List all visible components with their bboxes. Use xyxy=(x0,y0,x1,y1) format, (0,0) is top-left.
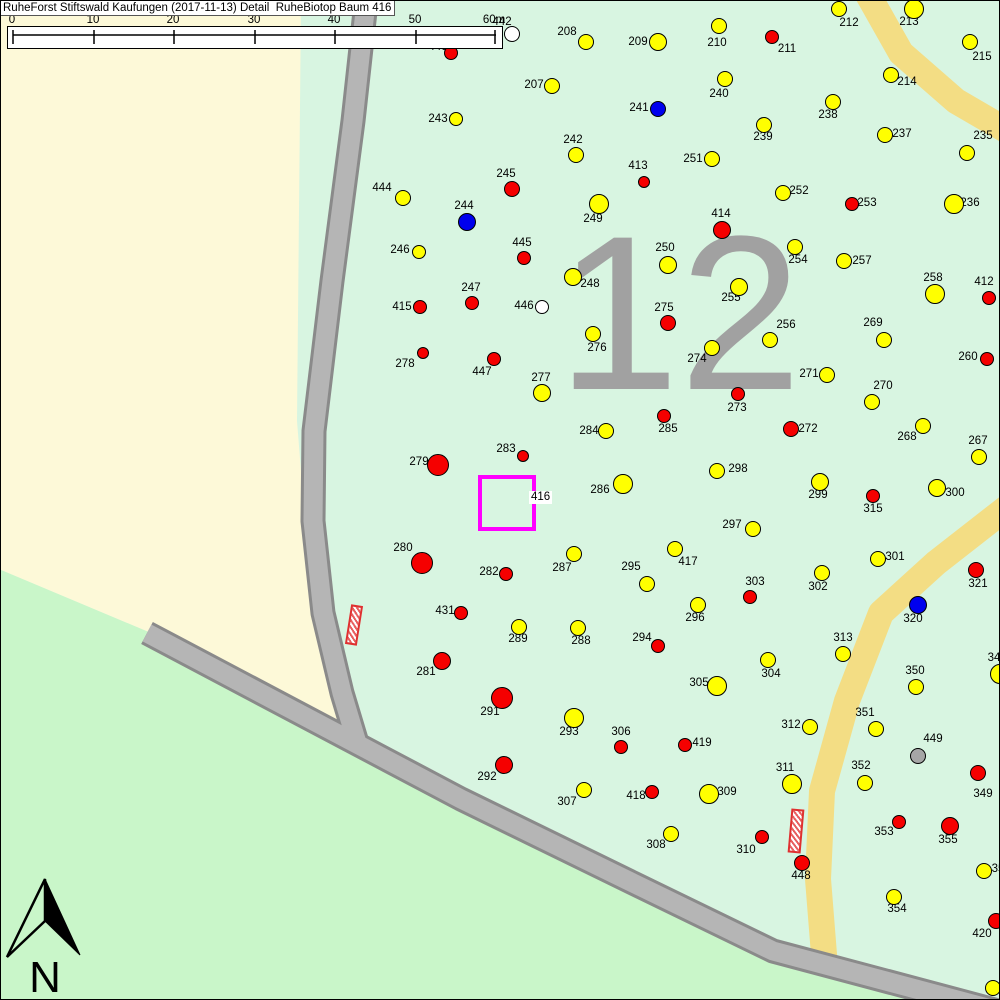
tree-dot-210[interactable] xyxy=(711,18,727,34)
tree-dot-214[interactable] xyxy=(883,67,899,83)
tree-dot-276[interactable] xyxy=(585,326,601,342)
tree-dot-431[interactable] xyxy=(454,606,468,620)
tree-label: 304 xyxy=(761,668,780,680)
tree-label: 258 xyxy=(923,272,942,284)
tree-dot-272[interactable] xyxy=(783,421,799,437)
tree-label: 278 xyxy=(395,358,414,370)
tree-label: 254 xyxy=(788,254,807,266)
tree-label: 287 xyxy=(552,562,571,574)
tree-label: 277 xyxy=(531,372,550,384)
tree-label: 284 xyxy=(579,425,598,437)
tree-label: 352 xyxy=(851,760,870,772)
tree-label: 305 xyxy=(689,677,708,689)
tree-label: 351 xyxy=(855,707,874,719)
tree-dot-239[interactable] xyxy=(756,117,772,133)
tree-dot-413[interactable] xyxy=(638,176,650,188)
tree-dot-299[interactable] xyxy=(811,473,829,491)
tree-dot-445[interactable] xyxy=(517,251,531,265)
tree-dot-207[interactable] xyxy=(544,78,560,94)
tree-label: 303 xyxy=(745,576,764,588)
map-canvas: 12 416 442443208209210211212213214215207… xyxy=(0,0,1000,1000)
tree-label: 243 xyxy=(428,113,447,125)
tree-label: 306 xyxy=(611,726,630,738)
tree-dot-236[interactable] xyxy=(944,194,964,214)
tree-dot-292[interactable] xyxy=(495,756,513,774)
tree-label: 418 xyxy=(626,790,645,802)
tree-dot-215[interactable] xyxy=(962,34,978,50)
tree-label: 208 xyxy=(557,26,576,38)
tree-label: 257 xyxy=(852,255,871,267)
tree-label: 275 xyxy=(654,302,673,314)
tree-label: 353 xyxy=(874,826,893,838)
tree-label: 283 xyxy=(496,443,515,455)
tree-label: 238 xyxy=(818,109,837,121)
tree-label: 312 xyxy=(781,719,800,731)
tree-label: 273 xyxy=(727,402,746,414)
tree-dot-298[interactable] xyxy=(709,463,725,479)
tree-dot-304[interactable] xyxy=(760,652,776,668)
north-arrow-left-blade xyxy=(7,879,45,957)
tree-dot-300[interactable] xyxy=(928,479,946,497)
tree-label: 274 xyxy=(687,353,706,365)
tree-label: 297 xyxy=(722,519,741,531)
tree-label: 302 xyxy=(808,581,827,593)
tree-label: 249 xyxy=(583,213,602,225)
tree-dot-247[interactable] xyxy=(465,296,479,310)
tree-dot-307[interactable] xyxy=(576,782,592,798)
tree-dot-293[interactable] xyxy=(564,708,584,728)
tree-label: 309 xyxy=(717,786,736,798)
tree-label: 245 xyxy=(496,168,515,180)
tree-label: 445 xyxy=(512,237,531,249)
tree-label: 253 xyxy=(857,197,876,209)
tree-dot-282[interactable] xyxy=(499,567,513,581)
tree-dot-280[interactable] xyxy=(411,552,433,574)
tree-label: 447 xyxy=(472,366,491,378)
tree-label: 349 xyxy=(973,788,992,800)
tree-dot-302[interactable] xyxy=(814,565,830,581)
tree-dot-235[interactable] xyxy=(959,145,975,161)
tree-dot-249[interactable] xyxy=(589,194,609,214)
tree-dot-273[interactable] xyxy=(731,387,745,401)
tree-dot-271[interactable] xyxy=(819,367,835,383)
tree-dot-350[interactable] xyxy=(908,679,924,695)
tree-label: 412 xyxy=(974,276,993,288)
tree-dot-291[interactable] xyxy=(491,687,513,709)
tree-dot-248[interactable] xyxy=(564,268,582,286)
tree-label: 311 xyxy=(776,762,794,774)
tree-dot-270[interactable] xyxy=(864,394,880,410)
tree-dot-446[interactable] xyxy=(535,300,549,314)
tree-label: 269 xyxy=(863,317,882,329)
tree-dot-260[interactable] xyxy=(980,352,994,366)
tree-dot-447[interactable] xyxy=(487,352,501,366)
tree-label: 247 xyxy=(461,282,480,294)
tree-label: 281 xyxy=(416,666,435,678)
tree-dot-415[interactable] xyxy=(413,300,427,314)
tree-label: 241 xyxy=(629,102,648,114)
tree-dot-448[interactable] xyxy=(794,855,810,871)
tree-dot-212[interactable] xyxy=(831,1,847,17)
tree-dot-243[interactable] xyxy=(449,112,463,126)
tree-label: 248 xyxy=(580,278,599,290)
tree-dot-295[interactable] xyxy=(639,576,655,592)
tree-dot-237[interactable] xyxy=(877,127,893,143)
tree-dot-312[interactable] xyxy=(802,719,818,735)
scale-number: 50 xyxy=(409,14,422,26)
tree-dot-278[interactable] xyxy=(417,347,429,359)
tree-label: 350 xyxy=(905,665,924,677)
tree-dot-444[interactable] xyxy=(395,190,411,206)
tree-label: 212 xyxy=(839,17,858,29)
tree-dot-254[interactable] xyxy=(787,239,803,255)
tree-dot-274[interactable] xyxy=(704,340,720,356)
tree-label: 250 xyxy=(655,242,674,254)
tree-label: 307 xyxy=(557,796,576,808)
tree-dot-321[interactable] xyxy=(968,562,984,578)
tree-label: 444 xyxy=(372,182,391,194)
tree-label: 413 xyxy=(628,160,647,172)
tree-dot-355[interactable] xyxy=(941,817,959,835)
tree-dot-306[interactable] xyxy=(614,740,628,754)
tree-dot-297[interactable] xyxy=(745,521,761,537)
north-label: N xyxy=(29,953,61,999)
tree-label: 207 xyxy=(524,79,543,91)
tree-dot-256[interactable] xyxy=(762,332,778,348)
tree-label: 449 xyxy=(923,733,942,745)
tree-dot-412[interactable] xyxy=(982,291,996,305)
tree-label: 292 xyxy=(477,771,496,783)
tree-dot-242[interactable] xyxy=(568,147,584,163)
tree-label: 214 xyxy=(897,76,916,88)
tree-label: 288 xyxy=(571,635,590,647)
tree-dot-240[interactable] xyxy=(717,71,733,87)
tree-label: 419 xyxy=(692,737,711,749)
tree-dot-252[interactable] xyxy=(775,185,791,201)
tree-label: 240 xyxy=(709,88,728,100)
tree-label: 313 xyxy=(833,632,852,644)
tree-dot-308[interactable] xyxy=(663,826,679,842)
tree-dot-209[interactable] xyxy=(649,33,667,51)
tree-label: 448 xyxy=(791,870,810,882)
tree-label: 252 xyxy=(789,185,808,197)
tree-dot-417[interactable] xyxy=(667,541,683,557)
tree-dot-245[interactable] xyxy=(504,181,520,197)
tree-dot-258[interactable] xyxy=(925,284,945,304)
tree-dot-281[interactable] xyxy=(433,652,451,670)
tree-label: 280 xyxy=(393,542,412,554)
tree-dot-255[interactable] xyxy=(730,278,748,296)
tree-dot[interactable] xyxy=(985,980,1000,996)
tree-label: 34 xyxy=(988,652,1000,664)
highlight-tree-label: 416 xyxy=(529,491,552,504)
tree-dot-285[interactable] xyxy=(657,409,671,423)
tree-dot-208[interactable] xyxy=(578,34,594,50)
tree-dot-250[interactable] xyxy=(659,256,677,274)
tree-dot-420[interactable] xyxy=(988,913,1000,929)
tree-label: 310 xyxy=(736,844,755,856)
tree-dot-288[interactable] xyxy=(570,620,586,636)
tree-label: 279 xyxy=(409,456,428,468)
tree-dot-213[interactable] xyxy=(904,0,924,19)
tree-label: 446 xyxy=(514,300,533,312)
tree-dot-246[interactable] xyxy=(412,245,426,259)
tree-label: 420 xyxy=(972,928,991,940)
tree-label: 417 xyxy=(678,556,697,568)
tree-dot-257[interactable] xyxy=(836,253,852,269)
tree-dot-311[interactable] xyxy=(782,774,802,794)
scale-bar-ticks xyxy=(8,27,500,46)
tree-label: 272 xyxy=(798,423,817,435)
tree-label: 270 xyxy=(873,380,892,392)
tree-label: 256 xyxy=(776,319,795,331)
tree-label: 267 xyxy=(968,435,987,447)
tree-label: 211 xyxy=(778,43,796,55)
tree-label: 242 xyxy=(563,134,582,146)
tree-dot-296[interactable] xyxy=(690,597,706,613)
tree-label: 300 xyxy=(945,487,964,499)
tree-label: 295 xyxy=(621,561,640,573)
tree-label: 296 xyxy=(685,612,704,624)
tree-dot-351[interactable] xyxy=(868,721,884,737)
tree-dot-289[interactable] xyxy=(511,619,527,635)
scale-bar-ruler xyxy=(7,26,503,49)
tree-dot-267[interactable] xyxy=(971,449,987,465)
compartment-number: 12 xyxy=(557,190,802,436)
tree-label: 415 xyxy=(392,301,411,313)
tree-dot-238[interactable] xyxy=(825,94,841,110)
tree-dot-275[interactable] xyxy=(660,315,676,331)
tree-label: 237 xyxy=(892,128,911,140)
tree-dot-211[interactable] xyxy=(765,30,779,44)
tree-dot-268[interactable] xyxy=(915,418,931,434)
tree-dot-353[interactable] xyxy=(892,815,906,829)
tree-dot-418[interactable] xyxy=(645,785,659,799)
tree-label: 282 xyxy=(479,566,498,578)
tree-label: 431 xyxy=(435,605,454,617)
tree-label: 244 xyxy=(454,200,473,212)
tree-dot-284[interactable] xyxy=(598,423,614,439)
tree-label: 320 xyxy=(903,613,922,625)
tree-label: 210 xyxy=(707,37,726,49)
tree-dot-301[interactable] xyxy=(870,551,886,567)
tree-label: 294 xyxy=(632,632,651,644)
tree-dot-414[interactable] xyxy=(713,221,731,239)
tree-label: 414 xyxy=(711,208,730,220)
tree-dot-419[interactable] xyxy=(678,738,692,752)
tree-label: 354 xyxy=(887,903,906,915)
tree-dot-449[interactable] xyxy=(910,748,926,764)
map-title: RuheForst Stiftswald Kaufungen (2017-11-… xyxy=(1,1,395,16)
tree-dot-283[interactable] xyxy=(517,450,529,462)
tree-label: 321 xyxy=(968,578,987,590)
tree-dot-315[interactable] xyxy=(866,489,880,503)
tree-label: 251 xyxy=(683,153,702,165)
tree-dot-294[interactable] xyxy=(651,639,665,653)
tree-label: 286 xyxy=(590,484,609,496)
tree-dot-309[interactable] xyxy=(699,784,719,804)
tree-dot-303[interactable] xyxy=(743,590,757,604)
north-arrow: N xyxy=(3,867,95,999)
tree-dot-320[interactable] xyxy=(909,596,927,614)
tree-dot-349[interactable] xyxy=(970,765,986,781)
tree-label: 315 xyxy=(863,503,882,515)
tree-dot-313[interactable] xyxy=(835,646,851,662)
tree-label: 268 xyxy=(897,431,916,443)
tree-dot-287[interactable] xyxy=(566,546,582,562)
tree-dot-241[interactable] xyxy=(650,101,666,117)
tree-label: 298 xyxy=(728,463,747,475)
tree-label: 246 xyxy=(390,244,409,256)
tree-dot-277[interactable] xyxy=(533,384,551,402)
tree-label: 35 xyxy=(992,863,1000,875)
scale-number: 60m xyxy=(483,14,505,26)
tree-dot-286[interactable] xyxy=(613,474,633,494)
north-arrow-right-blade xyxy=(45,879,80,955)
tree-label: 271 xyxy=(799,368,818,380)
tree-dot-442[interactable] xyxy=(504,26,520,42)
tree-label: 209 xyxy=(628,36,647,48)
tree-dot-269[interactable] xyxy=(876,332,892,348)
tree-label: 285 xyxy=(658,423,677,435)
tree-label: 260 xyxy=(958,351,977,363)
tree-dot-354[interactable] xyxy=(886,889,902,905)
tree-dot-251[interactable] xyxy=(704,151,720,167)
tree-dot-35[interactable] xyxy=(976,863,992,879)
tree-dot-253[interactable] xyxy=(845,197,859,211)
tree-dot-244[interactable] xyxy=(458,213,476,231)
tree-dot-310[interactable] xyxy=(755,830,769,844)
highlight-square-416 xyxy=(478,475,536,531)
tree-label: 235 xyxy=(973,130,992,142)
tree-dot-352[interactable] xyxy=(857,775,873,791)
tree-label: 308 xyxy=(646,839,665,851)
tree-dot-305[interactable] xyxy=(707,676,727,696)
tree-label: 355 xyxy=(938,834,957,846)
tree-dot-279[interactable] xyxy=(427,454,449,476)
tree-label: 301 xyxy=(885,551,904,563)
tree-label: 215 xyxy=(972,51,991,63)
tree-label: 276 xyxy=(587,342,606,354)
